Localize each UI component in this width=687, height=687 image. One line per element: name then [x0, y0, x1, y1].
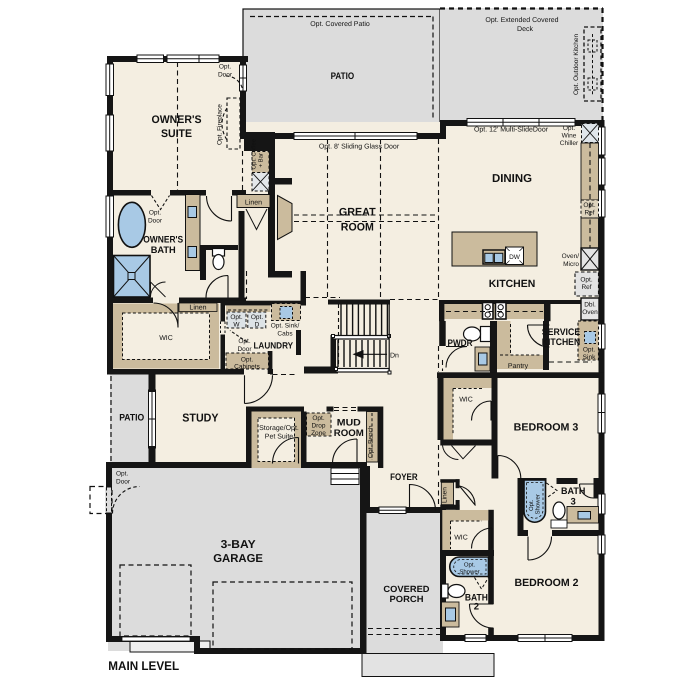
- svg-text:Cabs: Cabs: [277, 331, 293, 338]
- svg-text:Chiller: Chiller: [560, 140, 579, 147]
- svg-text:COVERED: COVERED: [383, 584, 430, 594]
- svg-text:Wine: Wine: [562, 133, 577, 140]
- svg-text:Opt. 8' Sliding Glass Door: Opt. 8' Sliding Glass Door: [319, 143, 400, 151]
- svg-text:Opt. Covered Patio: Opt. Covered Patio: [310, 20, 370, 28]
- svg-text:BATH: BATH: [561, 486, 586, 497]
- svg-text:Opt.: Opt.: [116, 471, 128, 478]
- svg-text:Opt.: Opt.: [528, 499, 535, 511]
- svg-text:WIC: WIC: [459, 397, 473, 404]
- svg-text:KITCHEN: KITCHEN: [489, 278, 536, 290]
- svg-text:Ref: Ref: [581, 284, 591, 291]
- svg-text:MAIN LEVEL: MAIN LEVEL: [108, 659, 179, 673]
- svg-text:Shower: Shower: [535, 494, 542, 514]
- svg-text:Opt.: Opt.: [583, 347, 595, 354]
- svg-text:Opt.: Opt.: [251, 314, 263, 321]
- svg-text:DW: DW: [509, 254, 521, 261]
- svg-text:Opt.: Opt.: [238, 338, 250, 345]
- svg-text:LAUNDRY: LAUNDRY: [253, 341, 293, 351]
- svg-text:Dbl.: Dbl.: [584, 302, 596, 309]
- svg-text:BATH: BATH: [151, 245, 176, 256]
- svg-text:STUDY: STUDY: [182, 412, 218, 424]
- svg-text:GARAGE: GARAGE: [213, 553, 263, 565]
- svg-text:Shower: Shower: [459, 569, 479, 576]
- svg-text:W: W: [233, 322, 240, 329]
- svg-text:Opt. Coffee: Opt. Coffee: [251, 138, 258, 169]
- svg-text:Opt.: Opt.: [149, 210, 161, 217]
- svg-text:PORCH: PORCH: [390, 594, 424, 604]
- svg-text:Deck: Deck: [517, 25, 533, 33]
- svg-text:Opt.: Opt.: [583, 202, 595, 209]
- svg-text:Opt.: Opt.: [563, 125, 575, 132]
- svg-text:KITCHEN: KITCHEN: [542, 337, 581, 348]
- svg-text:Oven/: Oven/: [562, 253, 580, 260]
- svg-text:BEDROOM 3: BEDROOM 3: [514, 421, 579, 433]
- svg-text:ROOM: ROOM: [341, 221, 374, 233]
- svg-text:Opt.: Opt.: [464, 562, 476, 569]
- svg-text:Opt.: Opt.: [580, 277, 592, 284]
- svg-text:WIC: WIC: [159, 335, 173, 342]
- svg-text:Storage/Opt.: Storage/Opt.: [259, 424, 299, 432]
- svg-text:Opt. Fireplace: Opt. Fireplace: [217, 104, 224, 145]
- svg-text:Opt. 12' Multi-SlideDoor: Opt. 12' Multi-SlideDoor: [474, 126, 549, 134]
- svg-text:Opt.: Opt.: [241, 357, 253, 364]
- svg-text:GREAT: GREAT: [339, 207, 376, 219]
- svg-text:2: 2: [474, 601, 479, 612]
- svg-text:Opt. Outdoor Kitchen: Opt. Outdoor Kitchen: [573, 34, 580, 95]
- svg-text:SUITE: SUITE: [161, 128, 192, 140]
- svg-text:OWNER'S: OWNER'S: [152, 114, 202, 126]
- svg-text:Pantry: Pantry: [508, 363, 529, 370]
- svg-text:Cabinets: Cabinets: [234, 364, 260, 371]
- svg-text:Zone: Zone: [311, 430, 326, 437]
- svg-text:WIC: WIC: [454, 535, 468, 542]
- svg-text:Door: Door: [218, 72, 233, 79]
- svg-text:+ Bar: + Bar: [258, 153, 265, 168]
- svg-text:Sink: Sink: [583, 354, 596, 361]
- svg-text:Door: Door: [116, 479, 131, 486]
- svg-text:Micro: Micro: [563, 261, 579, 268]
- svg-text:PATIO: PATIO: [331, 71, 355, 82]
- svg-text:Pet Suite: Pet Suite: [265, 433, 294, 441]
- svg-text:Door: Door: [237, 346, 252, 353]
- svg-text:Opt.: Opt.: [219, 64, 231, 71]
- svg-text:D: D: [255, 322, 260, 329]
- svg-text:Linen: Linen: [245, 199, 262, 207]
- svg-text:Dn: Dn: [390, 353, 399, 360]
- svg-text:Oven: Oven: [582, 309, 598, 316]
- svg-text:Ref: Ref: [584, 210, 594, 217]
- svg-text:Door: Door: [148, 218, 163, 225]
- svg-text:Linen: Linen: [442, 487, 449, 503]
- svg-text:Drop: Drop: [311, 423, 325, 430]
- svg-text:Opt.: Opt.: [312, 415, 324, 422]
- svg-text:Opt. Extended Covered: Opt. Extended Covered: [485, 16, 558, 24]
- svg-text:DINING: DINING: [492, 173, 532, 185]
- svg-text:PATIO: PATIO: [119, 413, 144, 424]
- svg-text:FOYER: FOYER: [390, 472, 418, 483]
- svg-text:Linen: Linen: [189, 304, 206, 312]
- svg-text:3: 3: [571, 496, 576, 507]
- svg-text:Opt. Bench: Opt. Bench: [368, 425, 375, 458]
- svg-text:3-BAY: 3-BAY: [221, 539, 256, 551]
- svg-text:Opt.: Opt.: [230, 314, 242, 321]
- svg-text:ROOM: ROOM: [334, 428, 364, 439]
- svg-text:BEDROOM 2: BEDROOM 2: [515, 577, 579, 589]
- svg-text:Opt. Sink/: Opt. Sink/: [271, 323, 300, 330]
- svg-text:PWDR: PWDR: [448, 338, 473, 349]
